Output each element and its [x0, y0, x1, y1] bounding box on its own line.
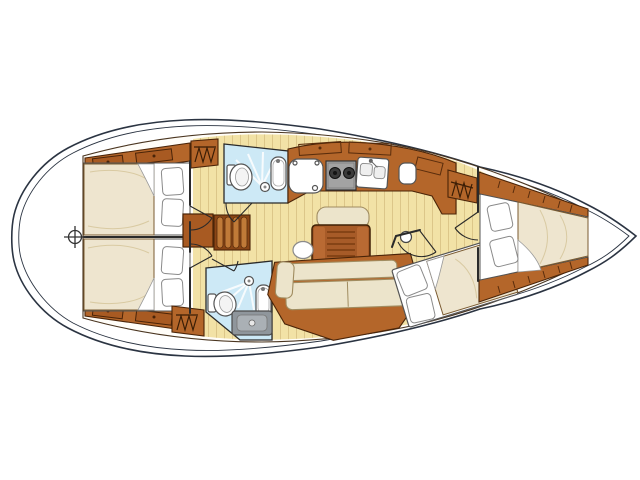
companionway-landing	[183, 214, 213, 247]
pillow	[406, 293, 436, 324]
pillow	[161, 246, 184, 274]
icebox	[289, 159, 323, 193]
shower-tray	[232, 311, 272, 335]
yacht-floorplan-page	[0, 0, 640, 480]
oval-stool	[293, 242, 313, 259]
pillow	[487, 202, 514, 232]
washbasin	[271, 157, 286, 190]
counter-corner	[399, 163, 416, 184]
yacht-floorplan	[0, 0, 640, 480]
shower-head-icon	[261, 183, 270, 192]
forward-cabin	[479, 172, 588, 302]
upper-head	[224, 144, 288, 203]
pillow	[161, 278, 183, 306]
stove	[326, 161, 356, 190]
pillow	[161, 167, 184, 195]
burner-icon	[330, 168, 341, 179]
seat-cushion	[285, 279, 408, 310]
pillow	[161, 198, 183, 226]
shower-head-icon	[245, 277, 254, 286]
corner-cushion	[275, 261, 294, 298]
back-cushion	[289, 260, 398, 281]
burner-icon	[344, 168, 355, 179]
double-sink	[356, 157, 389, 189]
